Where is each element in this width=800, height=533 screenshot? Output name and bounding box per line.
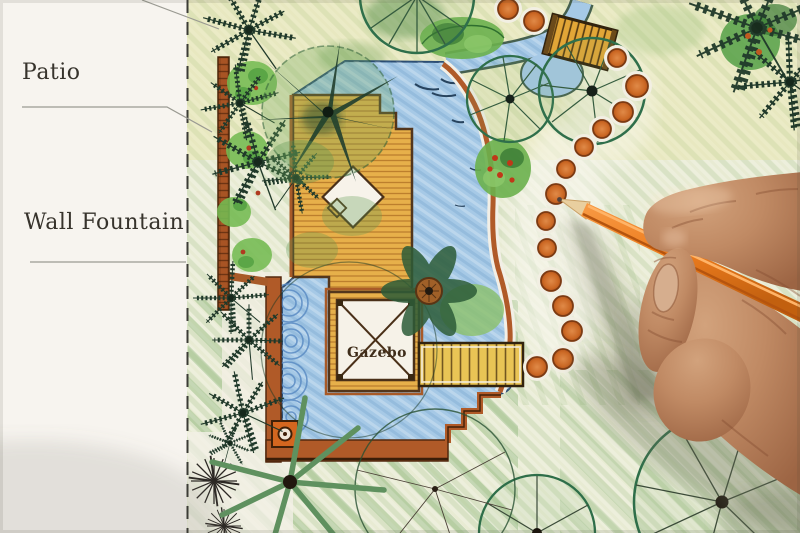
- wall-fountain-wall: [218, 57, 229, 310]
- patio-label: Patio: [22, 60, 81, 85]
- pencil-graphite: [557, 197, 562, 202]
- berry-shrub-right-bank: [475, 138, 531, 198]
- garden-plan-drawing: [0, 0, 800, 533]
- boardwalk-steps: [419, 343, 523, 386]
- garden-plan-photo: Patio Wall Fountain Gazebo: [0, 0, 800, 533]
- gazebo-label: Gazebo: [341, 345, 413, 361]
- wall-fountain-label: Wall Fountain: [24, 210, 184, 235]
- pump-detail: [272, 421, 298, 447]
- gazebo-structure: [337, 300, 414, 380]
